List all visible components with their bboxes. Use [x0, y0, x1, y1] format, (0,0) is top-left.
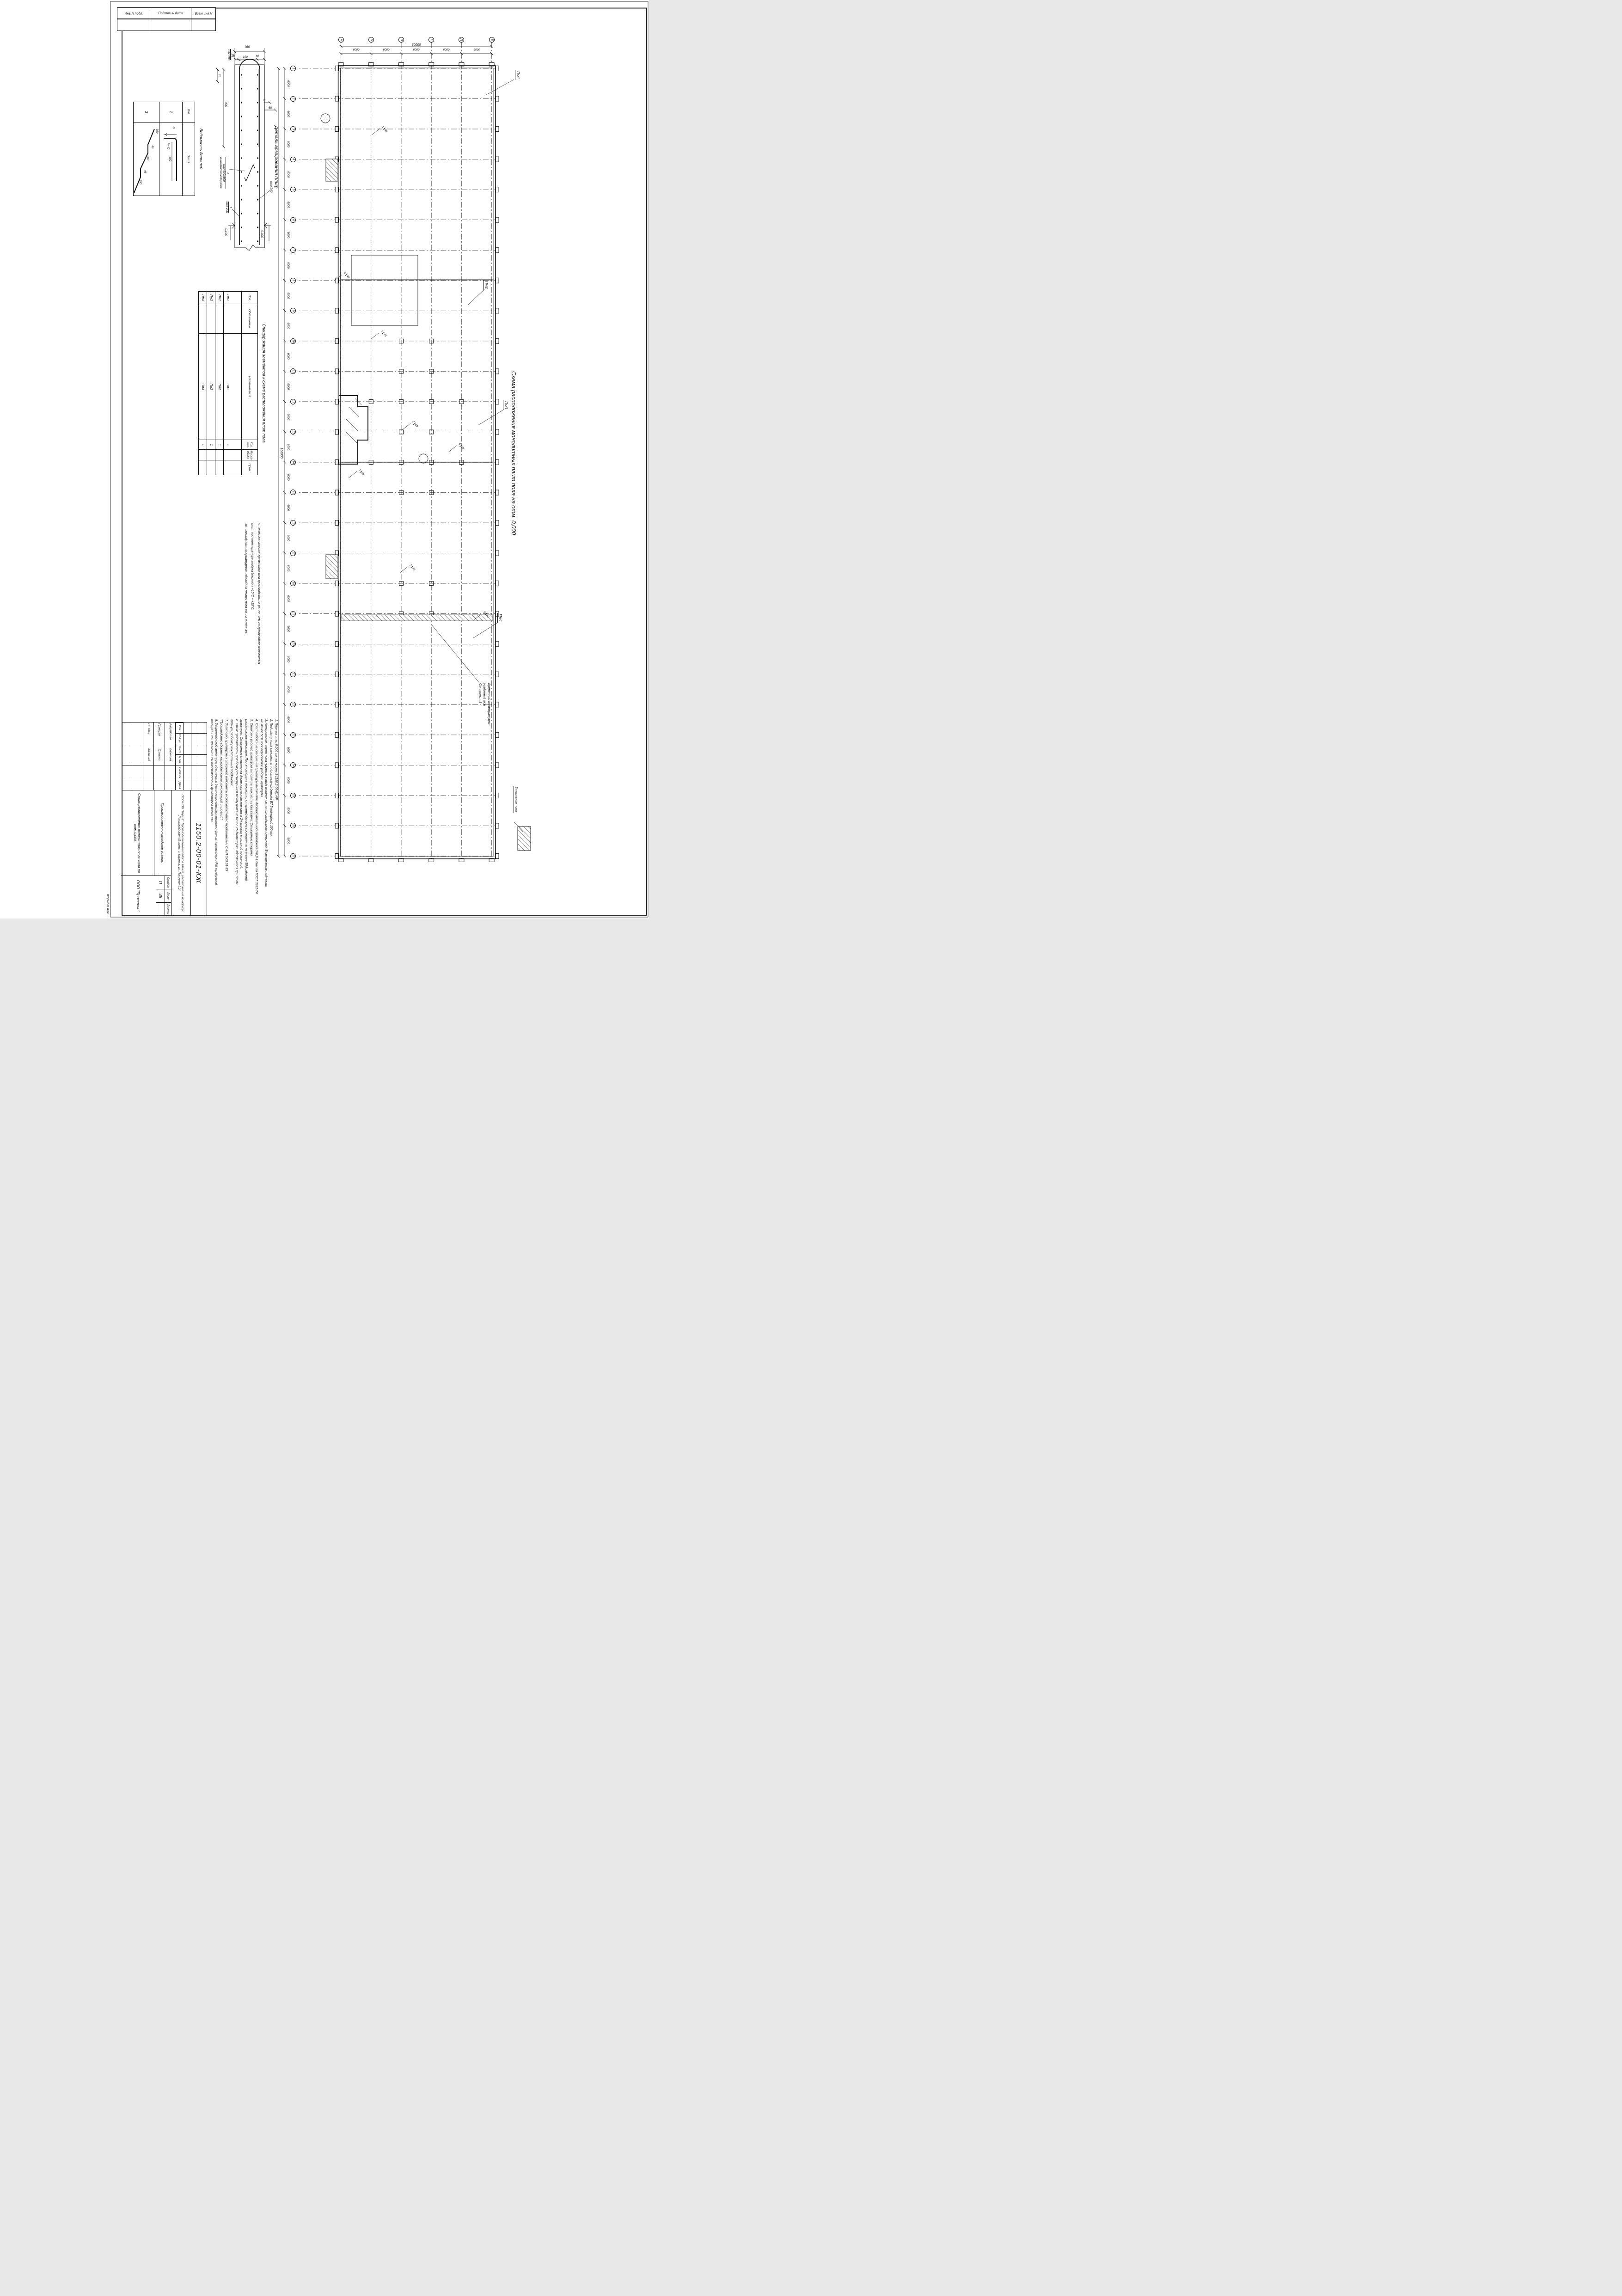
note-line: 2. Под плиту пола выполнить подготовку и…	[268, 719, 273, 918]
sheet-title-cell: Схема расположения монолитных плит пола …	[121, 790, 154, 876]
plan-title: Схема расположения монолитных плит пола …	[510, 351, 517, 555]
axis-circle: Д	[459, 37, 464, 43]
note-line: толщины или применением пластмассовых фи…	[208, 719, 214, 918]
axis-circle: 9	[290, 308, 296, 313]
detail-callout-2: 2шаг 200	[227, 49, 234, 60]
detail-callout-3: 3 шаг 600х600в шахматном порядке	[219, 157, 229, 189]
specification-row: Пм4 Пм4 1	[199, 292, 207, 475]
axis-circle: Г	[428, 37, 434, 43]
axis-circle: В	[398, 37, 404, 43]
axis-circle: 14	[290, 459, 296, 465]
project-cell: ООО НПФ "Барс-2". Производственно-складс…	[171, 790, 191, 916]
axis-circle: 23	[290, 732, 296, 738]
note-line: 8. Защитный слой арматуры обеспечить бет…	[214, 719, 219, 918]
role-row	[132, 722, 143, 790]
bay-dim-6000: 6000	[431, 47, 461, 53]
axis-circle: 27	[290, 853, 296, 859]
sheet-label: Лист	[165, 889, 171, 902]
axis-circle: 24	[290, 762, 296, 768]
axis-circle: 5	[290, 187, 296, 192]
bay-dim-6000: 6000	[285, 462, 290, 493]
note-line: 10. Спецификацию арматурных изделий на п…	[242, 523, 249, 685]
notes-main: 1. План на отм. 0,000 см. на листе 3 115…	[208, 719, 278, 918]
landscape-sheet: Схема расположения монолитных плит пола …	[0, 0, 649, 918]
note-line: расположить вплотную. При этом длина нах…	[243, 719, 248, 918]
stage-label: Стадия	[165, 876, 171, 889]
notes-extra: 9. Замоноличивание временного шва произв…	[242, 523, 262, 685]
slab-mark-label: Пм4	[497, 613, 503, 623]
bay-dim-6000: 6000	[285, 644, 290, 674]
bay-dim-6000: 6000	[285, 281, 290, 311]
bay-dim-6000: 6000	[285, 735, 290, 765]
axis-circle: 22	[290, 702, 296, 707]
axis-circle: 21	[290, 672, 296, 677]
bar-sketch-2	[160, 122, 182, 196]
note-line: 4. Крестообразные соединения арматуры вы…	[253, 719, 258, 918]
slab-mark-label: Пм2	[484, 280, 489, 290]
drawing-geometry	[0, 0, 649, 918]
row-sketch: 76 400 R=42	[159, 122, 182, 196]
stage-value: П	[156, 876, 165, 889]
col-header: Кол. шт.	[242, 440, 257, 449]
axis-circle: 3	[290, 126, 296, 132]
role-row: Разработал Воронина	[165, 722, 176, 790]
bay-dim-6000: 6000	[285, 614, 290, 644]
role-row	[122, 722, 132, 790]
details-list-title: Ведомость деталей	[199, 102, 203, 196]
format-label: Формат А3х3	[106, 881, 109, 915]
note-line: 6. Стыки располагать вразбежку со смещен…	[233, 719, 239, 918]
dim-160: 160	[244, 44, 252, 50]
number-axis-circles: 1234567891011121314151617181920212223242…	[290, 66, 296, 859]
bay-dim-6000: 6000	[285, 341, 290, 372]
note-line: не менее 50% всех пересечений рабочей ар…	[258, 719, 263, 918]
axis-circle: 26	[290, 823, 296, 828]
bay-dim-6000: 6000	[285, 826, 290, 856]
col-sketch: Эскиз	[183, 122, 195, 196]
total-dim-156000: 156000	[280, 438, 283, 468]
note-line: 7. Заготовку арматурных стержней выполня…	[223, 719, 228, 918]
specification-row: Пм1 Пм1 1	[224, 292, 232, 475]
note-line: 5. Стыковку рабочей арматуры выполнять в…	[248, 719, 253, 918]
note-line: арматуры. Стыкуемые стержни на длине нах…	[239, 719, 244, 918]
bay-dim-6000: 6000	[285, 674, 290, 705]
axis-circle: 7	[290, 247, 296, 253]
axis-circle: 20	[290, 641, 296, 647]
axis-circle: 6	[290, 217, 296, 223]
axis-circle: 13	[290, 429, 296, 435]
axis-circle: 11	[290, 368, 296, 374]
slab-mark-label: Пм1	[515, 70, 520, 80]
col-header: Масса ед.,кг	[242, 449, 257, 460]
bay-dim-6000: 6000	[285, 553, 290, 584]
role-row: Проверил Трошина	[154, 722, 165, 790]
row-pos: 2	[159, 102, 182, 122]
specification-row: Пм2 Пм2 1	[215, 292, 224, 475]
title-block: Изм. Кол.уч. Лист N док. Подпись Дата Ра…	[122, 722, 207, 915]
axis-circle: А	[338, 37, 344, 43]
note-line: плит при температуре воздуха близкой к +…	[249, 523, 255, 685]
header-cell: Изм.	[176, 722, 183, 733]
role-row: Гл. спец. Клименко	[143, 722, 154, 790]
axis-circle: 19	[290, 611, 296, 617]
bay-dim-6000: 6000	[285, 704, 290, 735]
specification-table: Поз. Обозначение Наименование Кол. шт. М…	[198, 291, 258, 475]
number-bay-dims: 6000600060006000600060006000600060006000…	[285, 68, 290, 856]
seam-label: Временный температурно- усадочный шов См…	[478, 683, 491, 739]
header-cell: N док.	[176, 754, 183, 765]
note-line: 9. Замоноличивание временного шва произв…	[255, 523, 262, 685]
stamp-cell: Инв.N подл.	[117, 7, 150, 19]
bay-dim-6000: 6000	[285, 220, 290, 251]
total-dim-30000: 30000	[413, 36, 422, 55]
company-cell: ООО "Проектин"	[121, 876, 156, 916]
col-header: Прим.	[242, 460, 257, 475]
dim-40: 40	[254, 55, 263, 58]
axis-circle: Б	[368, 37, 374, 43]
bay-dim-6000: 6000	[285, 523, 290, 553]
axis-circle: 1	[290, 66, 296, 71]
stamp-cell: Взам.инв.N	[191, 7, 216, 19]
insulation-label: Утепление пола	[514, 786, 518, 813]
axis-circle: 4	[290, 157, 296, 162]
bay-dim-6000: 6000	[285, 492, 290, 523]
dim-100: 100	[242, 55, 251, 60]
col-pos: Поз.	[183, 102, 195, 122]
bay-dim-6000: 6000	[285, 129, 290, 159]
detail-callout-1a: 1шаг 200	[269, 181, 276, 192]
specification-row: Пм3 Пм3 1	[207, 292, 215, 475]
header-cell: Подпись	[176, 765, 183, 780]
col-header: Обозначение	[242, 304, 257, 333]
details-list-table: Поз. Эскиз 2 76 400 R=42 3 35	[133, 102, 195, 196]
col-header: Поз.	[242, 292, 257, 304]
object-name-cell: Производственно-складское здание.	[154, 790, 171, 876]
dim-400: 400	[224, 95, 227, 114]
header-cell: Лист	[176, 744, 183, 754]
doc-number-cell: 1150.2-00-01-КЖ	[191, 790, 207, 916]
col-header: Наименование	[242, 333, 257, 440]
note-line: 3. Армирование плиты пола принято в виде…	[263, 719, 269, 918]
axis-circle: 12	[290, 399, 296, 404]
sheet-number: 48	[156, 889, 165, 902]
bay-dim-6000: 6000	[461, 47, 491, 53]
note-line: "Производство сборных железобетонных кон…	[218, 719, 223, 918]
titleblock-roles: Разработал Воронина Проверил Трошина Гл.…	[122, 722, 176, 790]
stamp-cell: Подпись и дата	[150, 7, 191, 19]
dim-26: 26	[218, 74, 221, 77]
bay-dim-6000: 6000	[285, 159, 290, 190]
bay-dim-6000: 6000	[285, 250, 290, 281]
bay-dim-6000: 6000	[285, 402, 290, 432]
drawing-sheet-page: Схема расположения монолитных плит пола …	[0, 0, 649, 918]
detail-callout-1b: 1шаг 200	[225, 202, 232, 213]
slab-mark-label: Пм3	[503, 400, 508, 410]
specification-rows: Пм1 Пм1 1 Пм2 Пм2 1 Пм3 Пм3 1	[199, 292, 232, 475]
bay-dim-6000: 6000	[285, 583, 290, 614]
bay-dim-6000: 6000	[285, 68, 290, 99]
axis-circle: 18	[290, 581, 296, 586]
side-stamp-blank	[117, 19, 215, 31]
bay-dim-6000: 6000	[371, 47, 401, 53]
note-line: 1. План на отм. 0,000 см. на листе 3 115…	[273, 719, 278, 918]
bay-dim-6000: 6000	[285, 765, 290, 796]
sheets-label: Листов	[165, 902, 171, 916]
bay-dim-6000: 6000	[285, 796, 290, 826]
axis-circle: 15	[290, 490, 296, 495]
dim-68: 68	[267, 106, 275, 110]
dim-15: 15	[262, 99, 270, 102]
bay-dim-6000: 6000	[285, 432, 290, 462]
side-stamp-labels: Инв.N подл.Подпись и датаВзам.инв.N	[117, 7, 215, 19]
axis-circle: 8	[290, 278, 296, 283]
bay-dim-6000: 6000	[285, 99, 290, 129]
header-cell: Кол.уч.	[176, 733, 183, 744]
bay-dim-6000: 6000	[285, 371, 290, 402]
elevation-bottom: -0,100	[224, 227, 227, 236]
specification-title: Спецификация элементов к схеме расположе…	[262, 291, 266, 475]
elevation-top: -0,020	[260, 229, 263, 238]
axis-circle: 10	[290, 338, 296, 344]
bay-dim-6000: 6000	[341, 47, 371, 53]
header-cell: Дата	[176, 780, 183, 790]
bay-dim-6000: 6000	[285, 311, 290, 341]
axis-circle: Е	[489, 37, 495, 43]
row-sketch: 350 46 300 46 350	[134, 122, 159, 196]
axis-circle: 25	[290, 793, 296, 798]
axis-circle: 2	[290, 96, 296, 102]
note-line: 50%-ую разбежку нахлесточных соединений.	[228, 719, 233, 918]
sheets-total	[156, 902, 165, 916]
axis-circle: 17	[290, 551, 296, 556]
bay-dim-6000: 6000	[285, 190, 290, 220]
row-pos: 3	[134, 102, 159, 122]
titleblock-header-row: Изм. Кол.уч. Лист N док. Подпись Дата	[176, 722, 184, 790]
axis-circle: 16	[290, 520, 296, 526]
